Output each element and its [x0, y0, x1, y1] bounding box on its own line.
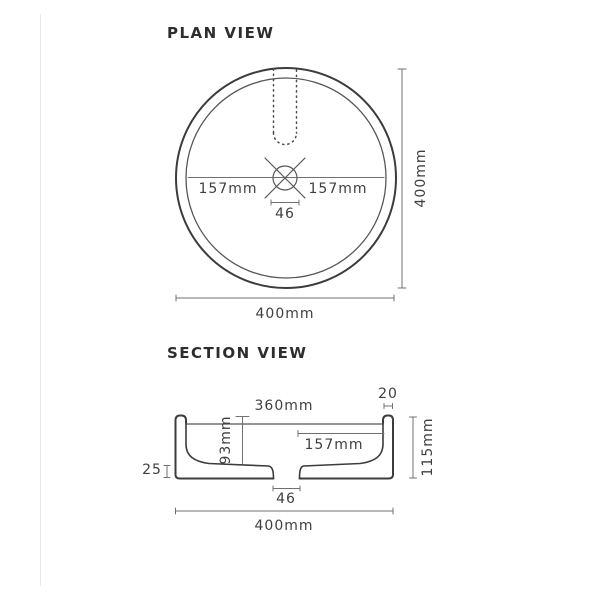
- plan-height-label: 400mm: [413, 149, 429, 208]
- plan-drain-dimension-line: [271, 200, 299, 205]
- plan-width-dimension-line: [176, 295, 394, 301]
- technical-drawing-canvas: PLAN VIEW 157mm 157mm 46 400mm 400mm SEC…: [0, 0, 600, 600]
- plan-width-label: 400mm: [256, 306, 315, 322]
- basin-linework: [0, 0, 600, 600]
- plan-overflow-slot-dashed: [274, 69, 297, 145]
- section-base-dimension: [164, 466, 170, 478]
- section-width-dimension: [176, 508, 394, 514]
- plan-view-title: PLAN VIEW: [167, 24, 274, 42]
- section-base-label: 25: [142, 462, 162, 478]
- section-drain-label: 46: [276, 491, 296, 507]
- section-radius-label: 157mm: [305, 437, 364, 453]
- section-wall-thickness-label: 20: [378, 386, 398, 402]
- plan-height-dimension-line: [398, 69, 406, 288]
- plan-drain-label: 46: [275, 206, 295, 222]
- section-height-dimension: [410, 417, 417, 478]
- section-height-label: 115mm: [420, 418, 436, 477]
- section-width-label: 400mm: [255, 518, 314, 534]
- section-wall-thickness-dimension: [384, 404, 393, 409]
- section-view-title: SECTION VIEW: [167, 344, 307, 362]
- section-radius-dimension: [298, 431, 384, 437]
- section-depth-label: 93mm: [218, 415, 234, 464]
- plan-left-radius-label: 157mm: [199, 181, 258, 197]
- plan-right-radius-label: 157mm: [309, 181, 368, 197]
- section-inner-width-label: 360mm: [255, 398, 314, 414]
